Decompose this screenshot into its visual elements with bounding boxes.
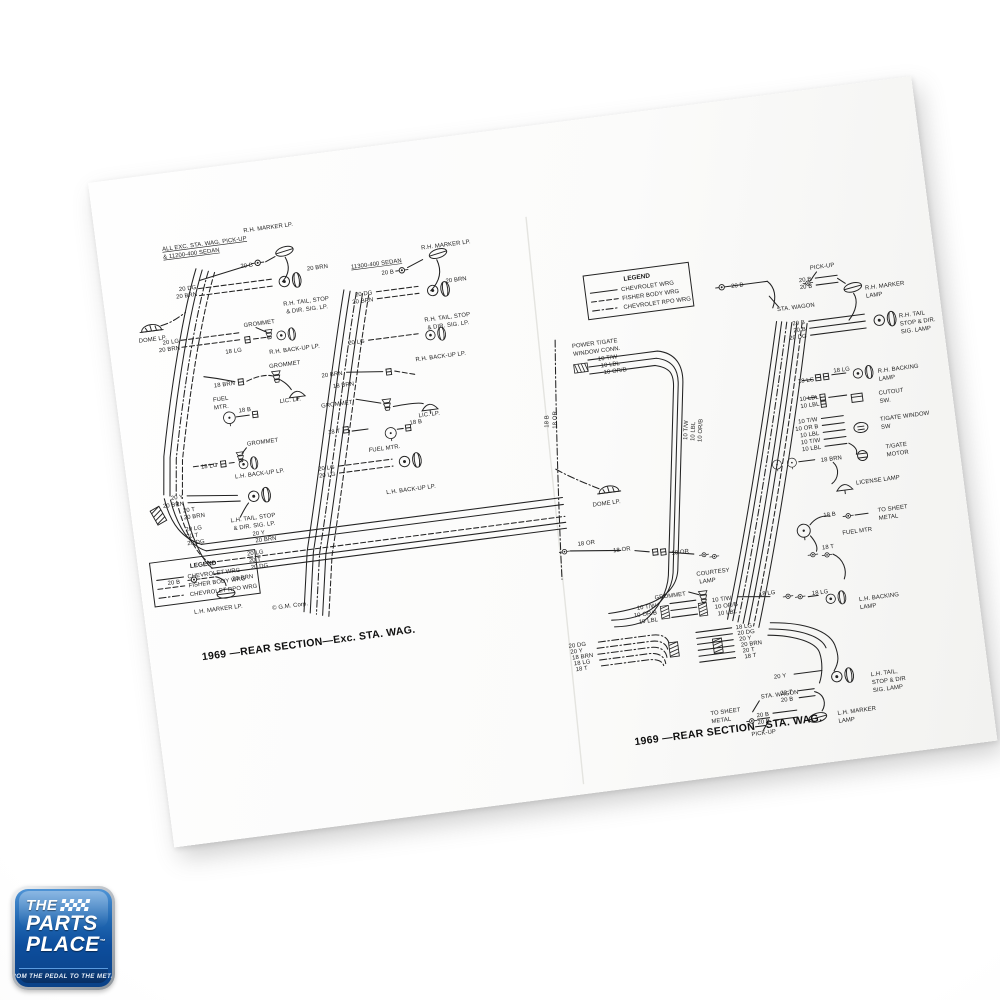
wire-label: GROMMET <box>269 360 301 370</box>
cutout-switch-icon <box>851 393 863 402</box>
wire-label: SW. <box>879 397 891 404</box>
wire-label: LAMP <box>866 292 883 300</box>
wire-label: 11300-400 SEDAN <box>351 258 403 271</box>
fuel-meter-icon <box>223 411 236 427</box>
connector-icon <box>823 373 829 380</box>
wire-label: LAMP <box>860 603 877 611</box>
legend-title: LEGEND <box>623 272 651 282</box>
legend-box: LEGENDCHEVROLET WRGFISHER BODY WRGCHEVRO… <box>583 262 694 319</box>
wire-label: 18 OR <box>671 549 689 557</box>
wire-label: R.H. BACK-UP LP. <box>269 343 320 356</box>
tailgate-window-switch-icon <box>853 422 868 434</box>
wire-label: GROMMET <box>321 400 353 410</box>
logo-tagline-banner: FROM THE PEDAL TO THE METAL <box>19 968 108 983</box>
connector-plug-icon <box>715 284 729 291</box>
fuel-meter-icon <box>385 427 398 442</box>
logo-place: PLACE™ <box>26 935 112 956</box>
grommet-icon <box>272 371 282 383</box>
connector-plug-icon <box>795 594 806 600</box>
wire-label: 10 LBL <box>802 445 823 454</box>
lh-backup-lamp-icon <box>398 452 422 469</box>
wire-label: 18 OR <box>553 411 559 429</box>
rh-marker-lamp-icon <box>843 281 863 294</box>
gm-copyright: © G.M. Corp. <box>272 600 309 612</box>
harness-connector-icon <box>712 638 723 653</box>
wire-label: 18 T <box>744 653 757 661</box>
diagram-sheet: ALL EXC. STA. WAG. PICK-UP& 11200-400 SE… <box>88 76 997 847</box>
wire-label: LAMP <box>699 577 716 585</box>
wire-label: R.H. BACK-UP LP. <box>415 351 466 364</box>
wire-label: R.H. MARKER <box>865 281 905 292</box>
wire-label: R.H. MARKER LP. <box>243 222 293 234</box>
wire-label: L.H. BACK-UP LP. <box>386 484 436 496</box>
wire-label: 20 BRN <box>307 264 329 273</box>
wire-label: LAMP <box>838 717 855 725</box>
wire-label: 18 BRN <box>214 381 236 390</box>
wire-label: FUEL MTR <box>842 527 873 537</box>
wire-label: 20 Y <box>774 673 787 681</box>
rh-backing-lamp-icon <box>852 365 873 381</box>
wire-label: 20 BRN <box>184 513 206 522</box>
connector-plug-icon <box>783 593 794 599</box>
logo-tagline: FROM THE PEDAL TO THE METAL <box>15 973 112 980</box>
connector-icon <box>343 427 349 434</box>
wire-label: PICK-UP <box>810 263 835 272</box>
wire-label: L.H. BACKING <box>859 592 900 603</box>
wire-label: 18 B <box>409 419 422 427</box>
wire-label: 18 BRN <box>333 381 355 390</box>
wire-label: 18 LG <box>798 377 815 385</box>
wire-label: R.H. BACKING <box>878 364 920 375</box>
diagram-exc-sta-wag: ALL EXC. STA. WAG. PICK-UP& 11200-400 SE… <box>108 192 577 668</box>
courtesy-lamp-icon <box>699 552 709 557</box>
wire-label: 10 LBL <box>690 421 697 441</box>
wire-label: SIG. LAMP <box>901 326 932 336</box>
wire-label: T/GATE WINDOW <box>880 411 930 423</box>
connector-icon <box>815 374 821 381</box>
connector-plug-icon <box>842 513 854 519</box>
wire-label: L.H. BACK-UP LP. <box>235 468 285 480</box>
wire-label: TO SHEET <box>877 504 908 514</box>
wire-label: 18 B <box>238 407 251 415</box>
grommet-icon <box>382 399 392 411</box>
wire-label: TO SHEET <box>710 707 741 717</box>
lh-tail-lamp-icon <box>248 487 272 504</box>
harness-connector-icon <box>698 602 708 616</box>
wire-label: 20 BRN <box>445 276 467 285</box>
grommet-icon <box>698 591 708 603</box>
wire-label: METAL <box>878 513 899 522</box>
wire-label: 20 B <box>240 262 253 270</box>
connector-icon <box>245 336 251 343</box>
wire-label: 18 OR <box>577 540 595 548</box>
wire-label: 18 T <box>328 429 341 437</box>
wire-label: 20 BRN <box>163 501 185 510</box>
dome-lamp-icon <box>139 323 164 333</box>
wire-label: GROMMET <box>243 319 275 329</box>
connector-icon <box>652 549 658 556</box>
power-tailgate-connector-icon <box>574 363 589 373</box>
license-lamp-icon <box>836 484 853 495</box>
wire-label: SW <box>881 424 892 431</box>
connector-plug-icon <box>395 267 409 274</box>
diagram-sta-wag: 20 BPICK-UP20 B20 BSTA. WAGONR.H. MARKER… <box>522 232 987 760</box>
wire-label: GROMMET <box>247 438 279 448</box>
wire-label: 18 LG <box>833 366 850 374</box>
wire-label: L.H. MARKER LP. <box>194 604 243 616</box>
dome-lamp-icon <box>596 484 621 494</box>
wire-label: 10 LBL <box>639 617 660 626</box>
rh-tail-lamp-icon <box>873 311 897 328</box>
wire-label: 10 LBL <box>717 609 738 618</box>
wire-label: 20 LG <box>185 525 202 533</box>
wire-label: LAMP <box>879 375 896 383</box>
wire-label: 18 T <box>822 544 835 552</box>
wire-label: 18 LG <box>759 590 776 598</box>
wire-label: CUTOUT <box>878 388 904 397</box>
logo-frame: THE PARTS PLACE™ FROM THE PEDAL TO THE M… <box>12 886 115 990</box>
wire-label: LIC. LP. <box>279 396 301 405</box>
wire-label: 18 OR <box>613 546 631 554</box>
wire-label: FUEL MTR. <box>368 444 401 454</box>
photo-background: ALL EXC. STA. WAG. PICK-UP& 11200-400 SE… <box>0 0 1000 1000</box>
logo-inner: THE PARTS PLACE™ FROM THE PEDAL TO THE M… <box>15 889 112 987</box>
caption-exc-sta-wag: 1969 —REAR SECTION—Exc. STA. WAG. <box>201 624 416 664</box>
connector-icon <box>252 411 258 418</box>
wire-label: 10 T/W <box>683 420 690 440</box>
wire-label: COURTESY <box>696 568 730 578</box>
legend-line-dashdot <box>159 595 186 598</box>
wire-label: 10 LBL <box>800 402 821 411</box>
wire-label: 18 T <box>575 666 588 674</box>
connector-icon <box>220 461 226 468</box>
parts-place-logo: THE PARTS PLACE™ FROM THE PEDAL TO THE M… <box>12 886 115 990</box>
wire-label: 18 B <box>823 511 836 519</box>
wiring-diagram-art: ALL EXC. STA. WAG. PICK-UP& 11200-400 SE… <box>88 76 997 847</box>
legend-line-dashed <box>592 299 619 302</box>
connector-icon <box>820 394 826 401</box>
fuel-meter-icon <box>796 523 811 541</box>
wire-label: 20 LG <box>319 472 336 480</box>
wire-label: 20 BRN <box>321 371 343 380</box>
wire-label: 18 LG <box>225 348 242 356</box>
wire-label: GROMMET <box>654 591 686 601</box>
wire-label: 20 B <box>167 579 180 587</box>
rh-marker-lamp-icon <box>275 244 295 258</box>
wire-label: 18 LG <box>812 589 829 597</box>
wire-label: MTR. <box>214 404 230 412</box>
wire-label: 18 B <box>544 415 550 428</box>
trademark-symbol: ™ <box>100 939 107 945</box>
wire-label: 20 B <box>800 284 813 292</box>
legend-line-solid <box>590 290 617 293</box>
harness-connector-icon <box>669 642 680 657</box>
rh-backup-lamp-icon <box>276 327 296 342</box>
harness-connector-icon <box>660 605 670 619</box>
wire-label: FUEL <box>213 396 230 404</box>
wire-label: 20 B <box>381 269 394 277</box>
wire-label: 10 OR/B <box>697 419 704 443</box>
wire-label: 18 BRN <box>821 455 843 464</box>
connector-icon <box>821 401 827 408</box>
wire-label: MOTOR <box>886 450 909 459</box>
wire-label: 18 LG <box>201 463 218 471</box>
connector-plug-icon <box>807 552 818 558</box>
wire-label: LICENSE LAMP <box>856 475 900 487</box>
wire-label: STA. WAGON <box>777 302 815 313</box>
courtesy-lamp-icon <box>709 554 719 559</box>
wire-label: 20 LG <box>348 339 365 347</box>
connector-plug-icon <box>822 552 833 558</box>
connector-icon <box>238 379 244 386</box>
checkered-flag-icon <box>59 899 90 912</box>
wire-label: DOME LP. <box>592 499 621 509</box>
wire-label: L.H. MARKER <box>837 706 876 717</box>
wire-label: SIG. LAMP <box>873 684 904 694</box>
wire-label: 20 DG <box>251 563 269 571</box>
connector-icon <box>660 549 666 556</box>
tailgate-motor-icon <box>857 450 868 461</box>
wire-label: 20 DG <box>187 539 205 547</box>
logo-parts: PARTS <box>26 914 112 935</box>
connector-icon <box>386 369 392 376</box>
rh-tail-lamp-icon <box>278 272 302 289</box>
wire-label: LIC. LP. <box>418 411 440 420</box>
wire-label: 20 B <box>731 282 744 290</box>
legend-line-dashdot <box>593 308 620 311</box>
